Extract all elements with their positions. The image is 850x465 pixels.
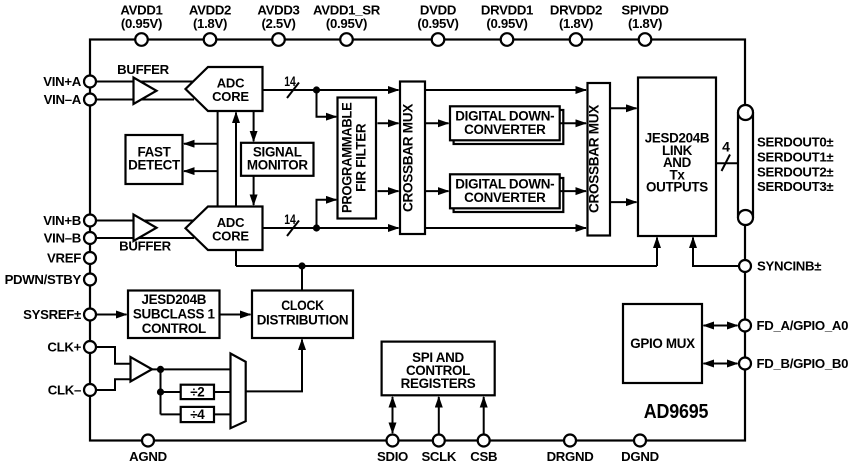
svg-text:CROSSBAR MUX: CROSSBAR MUX — [401, 104, 416, 212]
svg-text:VIN+A: VIN+A — [43, 74, 81, 89]
svg-text:PDWN/STBY: PDWN/STBY — [5, 272, 82, 287]
svg-text:(0.95V): (0.95V) — [326, 16, 367, 31]
svg-text:DRGND: DRGND — [547, 449, 594, 464]
svg-text:(0.95V): (0.95V) — [121, 16, 162, 31]
svg-text:VIN–A: VIN–A — [44, 92, 82, 107]
svg-text:SYSREF±: SYSREF± — [23, 307, 81, 322]
svg-text:PROGRAMMABLE: PROGRAMMABLE — [340, 102, 355, 213]
svg-text:CONVERTER: CONVERTER — [464, 190, 546, 205]
svg-text:(1.8V): (1.8V) — [628, 16, 662, 31]
svg-text:CORE: CORE — [212, 89, 249, 104]
svg-text:DETECT: DETECT — [128, 157, 181, 172]
svg-text:SERDOUT3±: SERDOUT3± — [757, 179, 833, 194]
svg-text:CLOCK: CLOCK — [281, 298, 324, 313]
svg-text:GPIO MUX: GPIO MUX — [630, 336, 695, 351]
svg-text:DISTRIBUTION: DISTRIBUTION — [257, 312, 349, 327]
svg-text:(0.95V): (0.95V) — [417, 16, 458, 31]
svg-text:4: 4 — [722, 139, 730, 155]
svg-text:14: 14 — [284, 211, 296, 227]
svg-text:(1.8V): (1.8V) — [193, 16, 227, 31]
svg-text:SERDOUT1±: SERDOUT1± — [757, 150, 833, 165]
svg-text:SCLK: SCLK — [421, 449, 456, 464]
svg-text:SYNCINB±: SYNCINB± — [757, 259, 821, 274]
svg-text:VIN–B: VIN–B — [44, 231, 81, 246]
svg-text:DGND: DGND — [621, 449, 659, 464]
svg-text:CLK–: CLK– — [48, 383, 81, 398]
svg-text:FIR FILTER: FIR FILTER — [354, 123, 369, 192]
svg-text:FD_B/GPIO_B0: FD_B/GPIO_B0 — [757, 356, 849, 371]
svg-text:SUBCLASS 1: SUBCLASS 1 — [133, 306, 216, 321]
svg-text:CONTROL: CONTROL — [142, 321, 206, 336]
svg-text:AD9695: AD9695 — [644, 401, 709, 423]
svg-text:BUFFER: BUFFER — [117, 62, 169, 77]
svg-text:CLK+: CLK+ — [47, 340, 81, 355]
svg-text:MONITOR: MONITOR — [247, 157, 309, 172]
svg-text:CROSSBAR MUX: CROSSBAR MUX — [587, 105, 602, 213]
svg-text:FD_A/GPIO_A0: FD_A/GPIO_A0 — [757, 318, 849, 333]
svg-text:JESD204B: JESD204B — [142, 292, 207, 307]
svg-text:SDIO: SDIO — [377, 449, 408, 464]
svg-text:(1.8V): (1.8V) — [559, 16, 593, 31]
svg-text:OUTPUTS: OUTPUTS — [646, 180, 708, 195]
svg-text:AGND: AGND — [129, 449, 167, 464]
svg-text:÷2: ÷2 — [190, 385, 204, 400]
svg-text:CSB: CSB — [470, 449, 497, 464]
svg-text:SERDOUT0±: SERDOUT0± — [757, 135, 833, 150]
svg-text:BUFFER: BUFFER — [119, 239, 171, 254]
svg-text:SERDOUT2±: SERDOUT2± — [757, 165, 833, 180]
svg-text:(0.95V): (0.95V) — [486, 16, 527, 31]
svg-text:14: 14 — [284, 73, 296, 89]
svg-text:REGISTERS: REGISTERS — [401, 376, 476, 391]
svg-text:(2.5V): (2.5V) — [261, 16, 295, 31]
svg-text:CORE: CORE — [212, 228, 249, 243]
svg-text:÷4: ÷4 — [190, 407, 205, 422]
svg-text:VIN+B: VIN+B — [43, 213, 81, 228]
svg-text:VREF: VREF — [47, 251, 81, 266]
svg-text:CONVERTER: CONVERTER — [464, 122, 546, 137]
